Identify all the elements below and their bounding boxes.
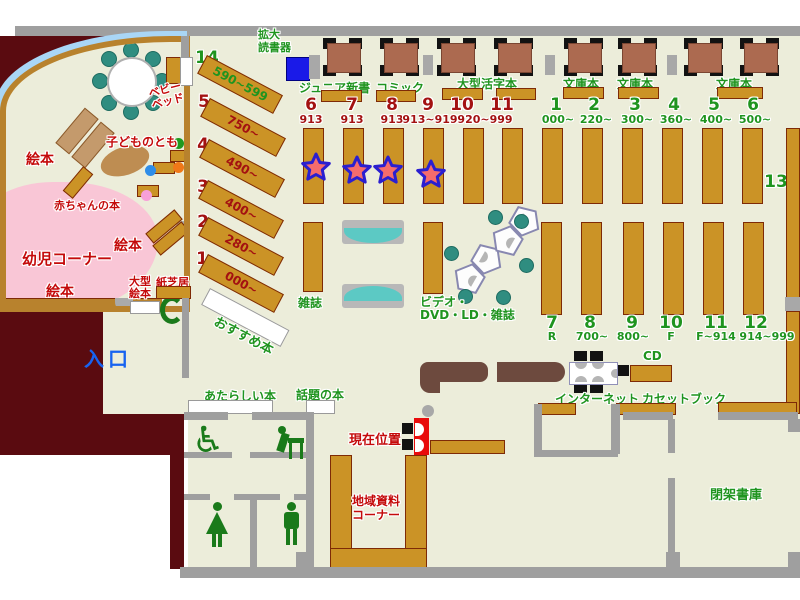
chair-dot [514,214,529,229]
cd-label: CD [643,349,662,363]
stack-range: R [540,330,564,343]
magazine-shelf [303,222,323,292]
closed-stacks-label: 閉架書庫 [710,484,762,503]
stack-shelf [463,128,484,204]
wall-segment [788,552,800,568]
stack-shelf [786,311,800,414]
pillar-dot [422,405,434,417]
video-label: ビデオ・ DVD・LD・雑誌 [420,296,515,322]
wall-shelf [538,403,576,415]
pillar [545,55,555,75]
star-icon [301,152,331,182]
woman-icon [206,502,228,548]
marker-chair [402,423,413,434]
star-icon [373,155,403,185]
wall-segment [306,412,314,568]
stack-number: 6 [296,95,326,115]
pillar [423,55,433,75]
reading-table [564,38,604,76]
seat-dot-pink [141,190,152,201]
chair [618,365,629,376]
stack-range: F [655,330,687,343]
stack-shelf [703,222,724,315]
south-wall [180,567,800,578]
pillar [785,297,800,311]
chair-dot [92,73,108,89]
step-shelf [170,150,190,162]
wall-segment [296,552,310,567]
stack-shelf [622,128,643,204]
phone-icon [160,296,184,324]
akachan-label: 赤ちゃんの本 [54,197,120,213]
current-location-label: 現在位置 [349,429,401,448]
reading-table [323,38,363,76]
stack-shelf [786,128,800,298]
marker-chair [402,439,413,450]
outside-area [104,412,184,455]
wall-segment [184,412,228,420]
outside-area [170,455,184,569]
seat-dot-blue [145,165,156,176]
stack-range: 360~ [654,113,698,126]
local-materials-label: 地域資料 コーナー [352,494,400,522]
stack-range: 300~ [615,113,659,126]
wall-segment [252,412,308,420]
kodomo-label: 子どものとも [106,133,178,150]
stack-range: 920~999 [447,113,523,126]
wall-segment [181,36,189,58]
stack-number: 9 [413,95,443,115]
wall-segment [182,298,189,378]
magazine-label: 雑誌 [298,294,322,311]
stack-range: 400~ [694,113,738,126]
wall-segment [718,412,798,420]
stack-range: 913 [332,113,372,126]
stack-shelf [623,222,644,315]
stack-number: 1 [541,95,571,115]
ehon-label: 絵本 [114,235,142,255]
stack-shelf [663,222,684,315]
chair-dot [123,42,139,58]
reading-table [437,38,477,76]
stack-range: 500~ [733,113,777,126]
stack-shelf [742,128,763,204]
stack-number: 3 [620,95,650,115]
large-picture-book-shelf [130,301,160,314]
stack-shelf [702,128,723,204]
stack-range: 700~ [572,330,612,343]
stack-number: 11 [487,95,517,115]
stack-shelf [662,128,683,204]
chair [574,351,587,361]
stack-number: 2 [579,95,609,115]
chair-dot [519,258,534,273]
stack-number: 4 [659,95,689,115]
ehon-label: 絵本 [26,149,54,169]
stack-range: F~914 [693,330,739,343]
stack-number: 7 [337,95,367,115]
stack-number: 5 [699,95,729,115]
outside-area [0,312,104,455]
service-counter [420,362,440,393]
wall-segment [294,494,306,500]
wall-segment [788,419,800,432]
stack-shelf [582,128,603,204]
av-shelf [423,222,443,294]
chair-dot [488,210,503,225]
reading-table [618,38,658,76]
wall-segment [666,552,680,567]
stack-number: 10 [447,95,477,115]
stack-shelf [743,222,764,315]
pillar [309,55,320,79]
entrance-label: 入口 [84,343,132,372]
chair [590,351,603,361]
reading-table [380,38,420,76]
wall-segment [668,478,675,555]
wheelchair-icon: ♿ [192,420,224,461]
library-floor-map: 絵本 子どものとも 赤ちゃんの本 絵本 幼児コーナー 絵本 ベビー ベッド 拡大… [0,0,800,600]
stack-shelf [541,222,562,315]
wall-segment [534,404,542,454]
wall-segment [184,494,210,500]
reading-table [494,38,534,76]
wall-segment [534,450,618,457]
seat-dot-orange [173,162,184,173]
large-picture-book-label: 大型 絵本 [129,276,151,300]
north-wall [15,26,800,36]
stack-range: 220~ [574,113,618,126]
stack-shelf [502,128,523,204]
stack-shelf [581,222,602,315]
magnifier-reader-label: 拡大 読書器 [258,28,291,54]
wall-segment [250,500,257,568]
stack-range: 914~999 [736,330,798,343]
magnifier-reader-device [286,57,310,81]
stack-number: 8 [377,95,407,115]
reading-table [740,38,780,76]
wall-segment [611,404,620,454]
baby-change-icon [276,424,306,462]
wall-segment [668,419,675,453]
man-icon [282,502,301,548]
kids-room: 絵本 子どものとも 赤ちゃんの本 絵本 幼児コーナー 絵本 [0,36,190,312]
wall-segment [234,494,280,500]
stack-number: 6 [738,95,768,115]
stack-range: 913 [291,113,331,126]
stack-shelf [542,128,563,204]
toddler-corner-label: 幼児コーナー [22,248,112,269]
wall-segment [623,412,673,420]
step-shelf [153,162,175,174]
star-icon [416,159,446,189]
reading-table [684,38,724,76]
star-icon [342,155,372,185]
current-location-marker [414,418,429,455]
cd-shelf [630,365,672,382]
service-counter [497,362,565,382]
stack-range: 800~ [613,330,653,343]
chair-dot [444,246,459,261]
pillar [667,55,677,75]
wall-shelf [430,440,505,454]
internet-table [569,362,618,385]
